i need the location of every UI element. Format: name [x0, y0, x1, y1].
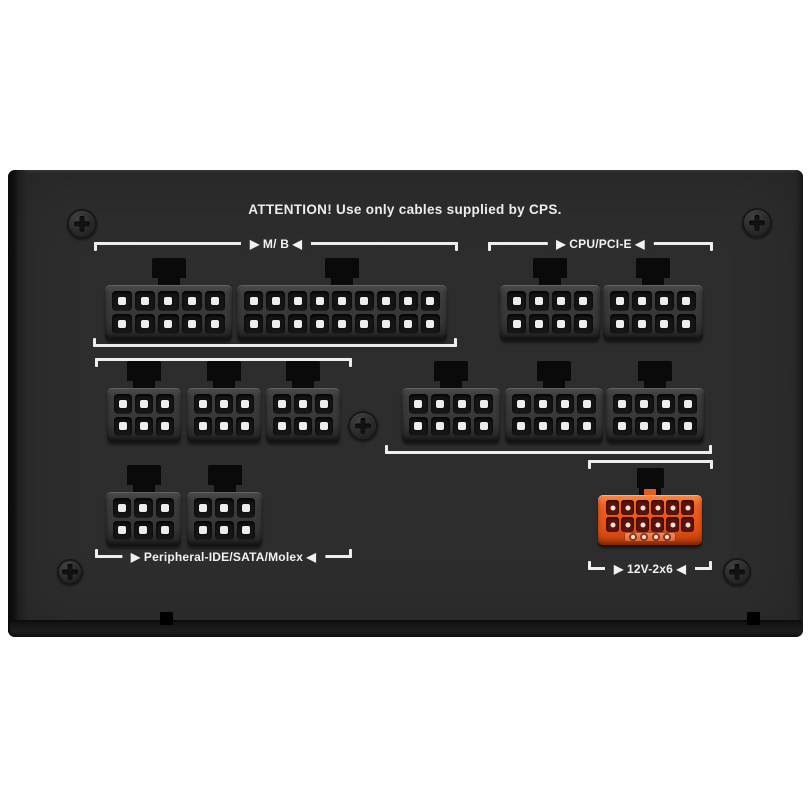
pin-contact: [299, 400, 307, 408]
sense-pin: [654, 535, 658, 539]
pin-contact: [610, 505, 615, 510]
pin-socket: [431, 417, 450, 437]
pin-contact: [161, 400, 169, 408]
pin-socket: [332, 291, 351, 311]
pin-socket: [474, 417, 493, 437]
pin-socket: [677, 314, 696, 334]
pin-socket: [507, 291, 526, 311]
connector-peripheral-6pin-1: [107, 388, 181, 442]
pin-contact: [579, 297, 587, 305]
psu-product-photo: ATTENTION! Use only cables supplied by C…: [0, 0, 810, 810]
pin-socket: [236, 394, 254, 414]
pin-socket: [606, 500, 619, 515]
pin-contact: [660, 297, 668, 305]
pin-contact: [513, 320, 521, 328]
cable-latch-slot: [127, 465, 161, 485]
pin-socket: [156, 498, 174, 518]
pin-contact: [199, 422, 207, 430]
pin-socket: [158, 291, 178, 311]
pin-socket: [399, 291, 418, 311]
pin-contact: [583, 400, 591, 408]
pin-contact: [662, 422, 670, 430]
pin-contact: [220, 422, 228, 430]
psu-right-edge: [794, 170, 803, 637]
group-label-cpu: ▶ CPU/PCI-E ◀: [547, 237, 653, 251]
pin-contact: [579, 320, 587, 328]
pin-socket: [512, 394, 531, 414]
pin-contact: [320, 400, 328, 408]
pin-contact: [338, 320, 346, 328]
psu-left-edge: [8, 170, 28, 637]
pin-contact: [320, 422, 328, 430]
pin-contact: [682, 320, 690, 328]
pin-contact: [616, 320, 624, 328]
cable-latch-slot: [133, 380, 155, 388]
pin-contact: [480, 400, 488, 408]
pin-socket: [632, 291, 651, 311]
pin-contact: [211, 320, 219, 328]
pin-socket: [294, 417, 312, 437]
pin-socket: [512, 417, 531, 437]
pin-socket: [677, 291, 696, 311]
pin-socket: [288, 314, 307, 334]
cable-latch-slot: [158, 277, 180, 285]
pin-contact: [682, 297, 690, 305]
pin-contact: [436, 422, 444, 430]
pin-contact: [458, 400, 466, 408]
pin-socket: [421, 314, 440, 334]
attention-text: ATTENTION! Use only cables supplied by C…: [0, 202, 810, 217]
pin-contact: [382, 320, 390, 328]
pin-contact: [241, 422, 249, 430]
pin-socket: [194, 498, 212, 518]
bracket-line: [93, 344, 457, 347]
pin-socket: [678, 394, 697, 414]
connector-cpu-pcie-8pin-1: [500, 285, 600, 340]
pin-socket: [681, 500, 694, 515]
connector-peripheral-6pin-2: [187, 388, 261, 442]
pin-socket: [635, 394, 654, 414]
pin-contact: [140, 422, 148, 430]
pin-socket: [606, 517, 619, 532]
pin-contact: [272, 297, 280, 305]
sense-pin-strip: [624, 532, 676, 542]
cable-latch-slot: [133, 484, 155, 492]
pin-contact: [557, 297, 565, 305]
cable-latch-slot: [331, 277, 353, 285]
pin-socket: [113, 498, 131, 518]
pin-contact: [360, 320, 368, 328]
pin-socket: [134, 521, 152, 541]
screw: [57, 559, 83, 585]
pin-contact: [539, 400, 547, 408]
pin-contact: [684, 422, 692, 430]
pin-socket: [621, 500, 634, 515]
pin-contact: [139, 526, 147, 534]
pin-contact: [655, 505, 660, 510]
bracket-end-tick: [349, 549, 352, 558]
pin-contact: [220, 526, 228, 534]
pin-socket: [657, 394, 676, 414]
group-label-v12: ▶ 12V-2x6 ◀: [605, 562, 695, 576]
pin-socket: [507, 314, 526, 334]
pin-contact: [161, 422, 169, 430]
pin-contact: [640, 400, 648, 408]
bracket-end-tick: [95, 549, 98, 558]
connector-peripheral-6pin-4: [106, 492, 181, 546]
pin-socket: [310, 314, 329, 334]
pin-contact: [141, 320, 149, 328]
screw: [348, 411, 378, 441]
pin-socket: [294, 394, 312, 414]
bracket-end-tick: [349, 358, 352, 367]
pin-contact: [294, 320, 302, 328]
pin-socket: [215, 498, 233, 518]
connector-cpu-pcie-8pin-4: [505, 388, 603, 442]
pin-socket: [135, 394, 153, 414]
pin-contact: [662, 400, 670, 408]
pin-contact: [199, 400, 207, 408]
pin-socket: [237, 498, 255, 518]
pin-socket: [273, 417, 291, 437]
pin-contact: [660, 320, 668, 328]
pin-socket: [244, 291, 263, 311]
pin-socket: [355, 314, 374, 334]
pin-contact: [670, 505, 675, 510]
pin-contact: [640, 422, 648, 430]
pin-socket: [237, 521, 255, 541]
pin-contact: [404, 320, 412, 328]
pin-socket: [651, 500, 664, 515]
pin-socket: [621, 517, 634, 532]
pin-contact: [299, 422, 307, 430]
cable-latch-slot: [440, 380, 462, 388]
pin-contact: [242, 526, 250, 534]
bracket-12v-bottom: ▶ 12V-2x6 ◀: [588, 561, 712, 570]
pin-socket: [273, 394, 291, 414]
bracket-peripheral-bottom: ▶ Peripheral-IDE/SATA/Molex ◀: [95, 549, 352, 558]
case-notch: [747, 612, 760, 625]
pin-socket: [431, 394, 450, 414]
pin-contact: [625, 505, 630, 510]
cable-latch-slot: [642, 277, 664, 285]
bracket-line: [385, 451, 712, 454]
cable-latch-slot: [213, 380, 235, 388]
pin-contact: [640, 505, 645, 510]
pin-contact: [250, 297, 258, 305]
pin-contact: [539, 422, 547, 430]
pin-socket: [156, 521, 174, 541]
pin-contact: [638, 320, 646, 328]
bracket-mb-top: ▶ M/ B ◀: [94, 242, 458, 251]
pin-contact: [557, 320, 565, 328]
pin-contact: [640, 522, 645, 527]
pin-contact: [141, 297, 149, 305]
pin-socket: [158, 314, 178, 334]
bracket-end-tick: [710, 460, 713, 469]
pin-socket: [194, 417, 212, 437]
pin-socket: [112, 314, 132, 334]
pin-contact: [139, 504, 147, 512]
pin-socket: [315, 417, 333, 437]
bracket-end-tick: [385, 445, 388, 454]
bracket-cpu-bottom: [385, 445, 712, 454]
connector-peripheral-6pin-5: [187, 492, 262, 546]
pin-contact: [294, 297, 302, 305]
pin-contact: [164, 320, 172, 328]
bracket-end-tick: [588, 561, 591, 570]
pin-socket: [205, 291, 225, 311]
pin-socket: [244, 314, 263, 334]
pin-contact: [161, 526, 169, 534]
connector-12v-2x6: [598, 495, 702, 545]
pin-socket: [453, 417, 472, 437]
pin-socket: [194, 521, 212, 541]
case-notch: [160, 612, 173, 625]
pin-socket: [678, 417, 697, 437]
pin-socket: [266, 314, 285, 334]
bracket-line: [588, 460, 713, 463]
pin-contact: [161, 504, 169, 512]
pin-socket: [182, 314, 202, 334]
pin-socket: [114, 417, 132, 437]
pin-socket: [310, 291, 329, 311]
pin-socket: [534, 394, 553, 414]
screw-cross: [735, 564, 740, 580]
pin-contact: [188, 297, 196, 305]
pin-socket: [135, 314, 155, 334]
sense-pin: [665, 535, 669, 539]
pin-socket: [577, 394, 596, 414]
pin-socket: [610, 291, 629, 311]
bracket-end-tick: [93, 338, 96, 347]
pin-contact: [241, 400, 249, 408]
screw-cross: [80, 216, 85, 232]
pin-socket: [529, 291, 548, 311]
pin-contact: [616, 297, 624, 305]
pin-contact: [250, 320, 258, 328]
pin-contact: [458, 422, 466, 430]
pin-socket: [529, 314, 548, 334]
pin-socket: [635, 417, 654, 437]
pin-socket: [651, 517, 664, 532]
pin-socket: [377, 291, 396, 311]
bracket-peripheral-top: [95, 358, 352, 367]
pin-contact: [119, 422, 127, 430]
pin-socket: [112, 291, 132, 311]
bracket-end-tick: [709, 561, 712, 570]
pin-socket: [377, 314, 396, 334]
bracket-cpu-top: ▶ CPU/PCI-E ◀: [488, 242, 713, 251]
pin-contact: [535, 297, 543, 305]
bracket-12v-top: [588, 460, 713, 469]
bracket-end-tick: [709, 445, 712, 454]
pin-contact: [561, 400, 569, 408]
pin-socket: [332, 314, 351, 334]
pin-socket: [655, 314, 674, 334]
pin-contact: [426, 320, 434, 328]
pin-contact: [517, 422, 525, 430]
pin-socket: [574, 291, 593, 311]
sense-pin: [631, 535, 635, 539]
bracket-end-tick: [454, 338, 457, 347]
pin-contact: [164, 297, 172, 305]
pin-contact: [685, 522, 690, 527]
cable-latch-slot: [537, 361, 571, 381]
screw-cross: [361, 418, 366, 434]
pin-contact: [436, 400, 444, 408]
pin-socket: [113, 521, 131, 541]
pin-contact: [684, 400, 692, 408]
cable-latch-slot: [644, 380, 666, 388]
pin-socket: [355, 291, 374, 311]
pin-socket: [135, 291, 155, 311]
pin-socket: [474, 394, 493, 414]
pin-contact: [404, 297, 412, 305]
pin-socket: [215, 394, 233, 414]
pin-contact: [220, 504, 228, 512]
pin-socket: [556, 417, 575, 437]
pin-contact: [316, 320, 324, 328]
pin-contact: [685, 505, 690, 510]
screw: [742, 208, 772, 238]
pin-contact: [480, 422, 488, 430]
pin-socket: [655, 291, 674, 311]
pin-contact: [513, 297, 521, 305]
pin-contact: [382, 297, 390, 305]
cable-latch-slot: [637, 468, 664, 488]
pin-socket: [681, 517, 694, 532]
connector-cpu-pcie-8pin-5: [606, 388, 704, 442]
pin-socket: [236, 417, 254, 437]
pin-contact: [426, 297, 434, 305]
bracket-mb-bottom: [93, 338, 457, 347]
pin-socket: [552, 291, 571, 311]
pin-contact: [618, 422, 626, 430]
pin-socket: [266, 291, 285, 311]
screw: [723, 558, 751, 586]
pin-contact: [561, 422, 569, 430]
pin-socket: [636, 517, 649, 532]
pin-socket: [215, 417, 233, 437]
cable-latch-slot: [533, 258, 567, 278]
pin-socket: [399, 314, 418, 334]
pin-contact: [119, 400, 127, 408]
pin-contact: [670, 522, 675, 527]
pin-contact: [655, 522, 660, 527]
connector-mb-10pin: [105, 285, 232, 340]
pin-contact: [188, 320, 196, 328]
pin-socket: [182, 291, 202, 311]
pin-contact: [118, 504, 126, 512]
pin-socket: [577, 417, 596, 437]
pin-socket: [156, 417, 174, 437]
pin-contact: [118, 526, 126, 534]
pin-contact: [360, 297, 368, 305]
connector-cpu-pcie-8pin-2: [603, 285, 703, 340]
screw-cross: [755, 215, 760, 231]
pin-socket: [574, 314, 593, 334]
pin-socket: [657, 417, 676, 437]
cable-latch-slot: [152, 258, 186, 278]
bracket-end-tick: [488, 242, 491, 251]
pin-socket: [215, 521, 233, 541]
pin-socket: [632, 314, 651, 334]
cable-latch-slot: [638, 361, 672, 381]
pin-contact: [140, 400, 148, 408]
pin-socket: [613, 394, 632, 414]
pin-socket: [194, 394, 212, 414]
pin-socket: [135, 417, 153, 437]
pin-contact: [517, 400, 525, 408]
bracket-end-tick: [95, 358, 98, 367]
pin-contact: [610, 522, 615, 527]
sense-pin: [642, 535, 646, 539]
pin-contact: [414, 400, 422, 408]
screw: [67, 209, 97, 239]
pin-contact: [338, 297, 346, 305]
pin-socket: [666, 517, 679, 532]
pin-socket: [156, 394, 174, 414]
pin-contact: [220, 400, 228, 408]
cable-latch-slot: [214, 484, 236, 492]
pin-contact: [535, 320, 543, 328]
pin-contact: [278, 422, 286, 430]
bracket-end-tick: [94, 242, 97, 251]
pin-socket: [205, 314, 225, 334]
psu-bottom-vent-strip: [10, 620, 801, 637]
pin-socket: [610, 314, 629, 334]
pin-socket: [534, 417, 553, 437]
connector-cpu-pcie-8pin-3: [402, 388, 500, 442]
pin-socket: [613, 417, 632, 437]
bracket-end-tick: [588, 460, 591, 469]
cable-latch-slot: [636, 258, 670, 278]
cable-latch-slot: [208, 465, 242, 485]
pin-socket: [409, 394, 428, 414]
bracket-end-tick: [710, 242, 713, 251]
screw-cross: [68, 564, 73, 580]
pin-contact: [242, 504, 250, 512]
pin-socket: [556, 394, 575, 414]
bracket-end-tick: [455, 242, 458, 251]
pin-contact: [583, 422, 591, 430]
pin-contact: [199, 526, 207, 534]
pin-socket: [552, 314, 571, 334]
cable-latch-slot: [292, 380, 314, 388]
pin-contact: [199, 504, 207, 512]
pin-contact: [316, 297, 324, 305]
pin-socket: [453, 394, 472, 414]
pin-contact: [414, 422, 422, 430]
cable-latch-slot: [434, 361, 468, 381]
pin-socket: [315, 394, 333, 414]
bracket-line: [95, 358, 352, 361]
connector-mb-18pin: [237, 285, 447, 340]
pin-contact: [638, 297, 646, 305]
pin-contact: [618, 400, 626, 408]
pin-contact: [278, 400, 286, 408]
pin-socket: [134, 498, 152, 518]
pin-contact: [625, 522, 630, 527]
group-label-peripheral: ▶ Peripheral-IDE/SATA/Molex ◀: [122, 550, 325, 564]
pin-contact: [118, 320, 126, 328]
pin-socket: [636, 500, 649, 515]
connector-peripheral-6pin-3: [266, 388, 340, 442]
pin-socket: [666, 500, 679, 515]
pin-contact: [272, 320, 280, 328]
pin-socket: [409, 417, 428, 437]
